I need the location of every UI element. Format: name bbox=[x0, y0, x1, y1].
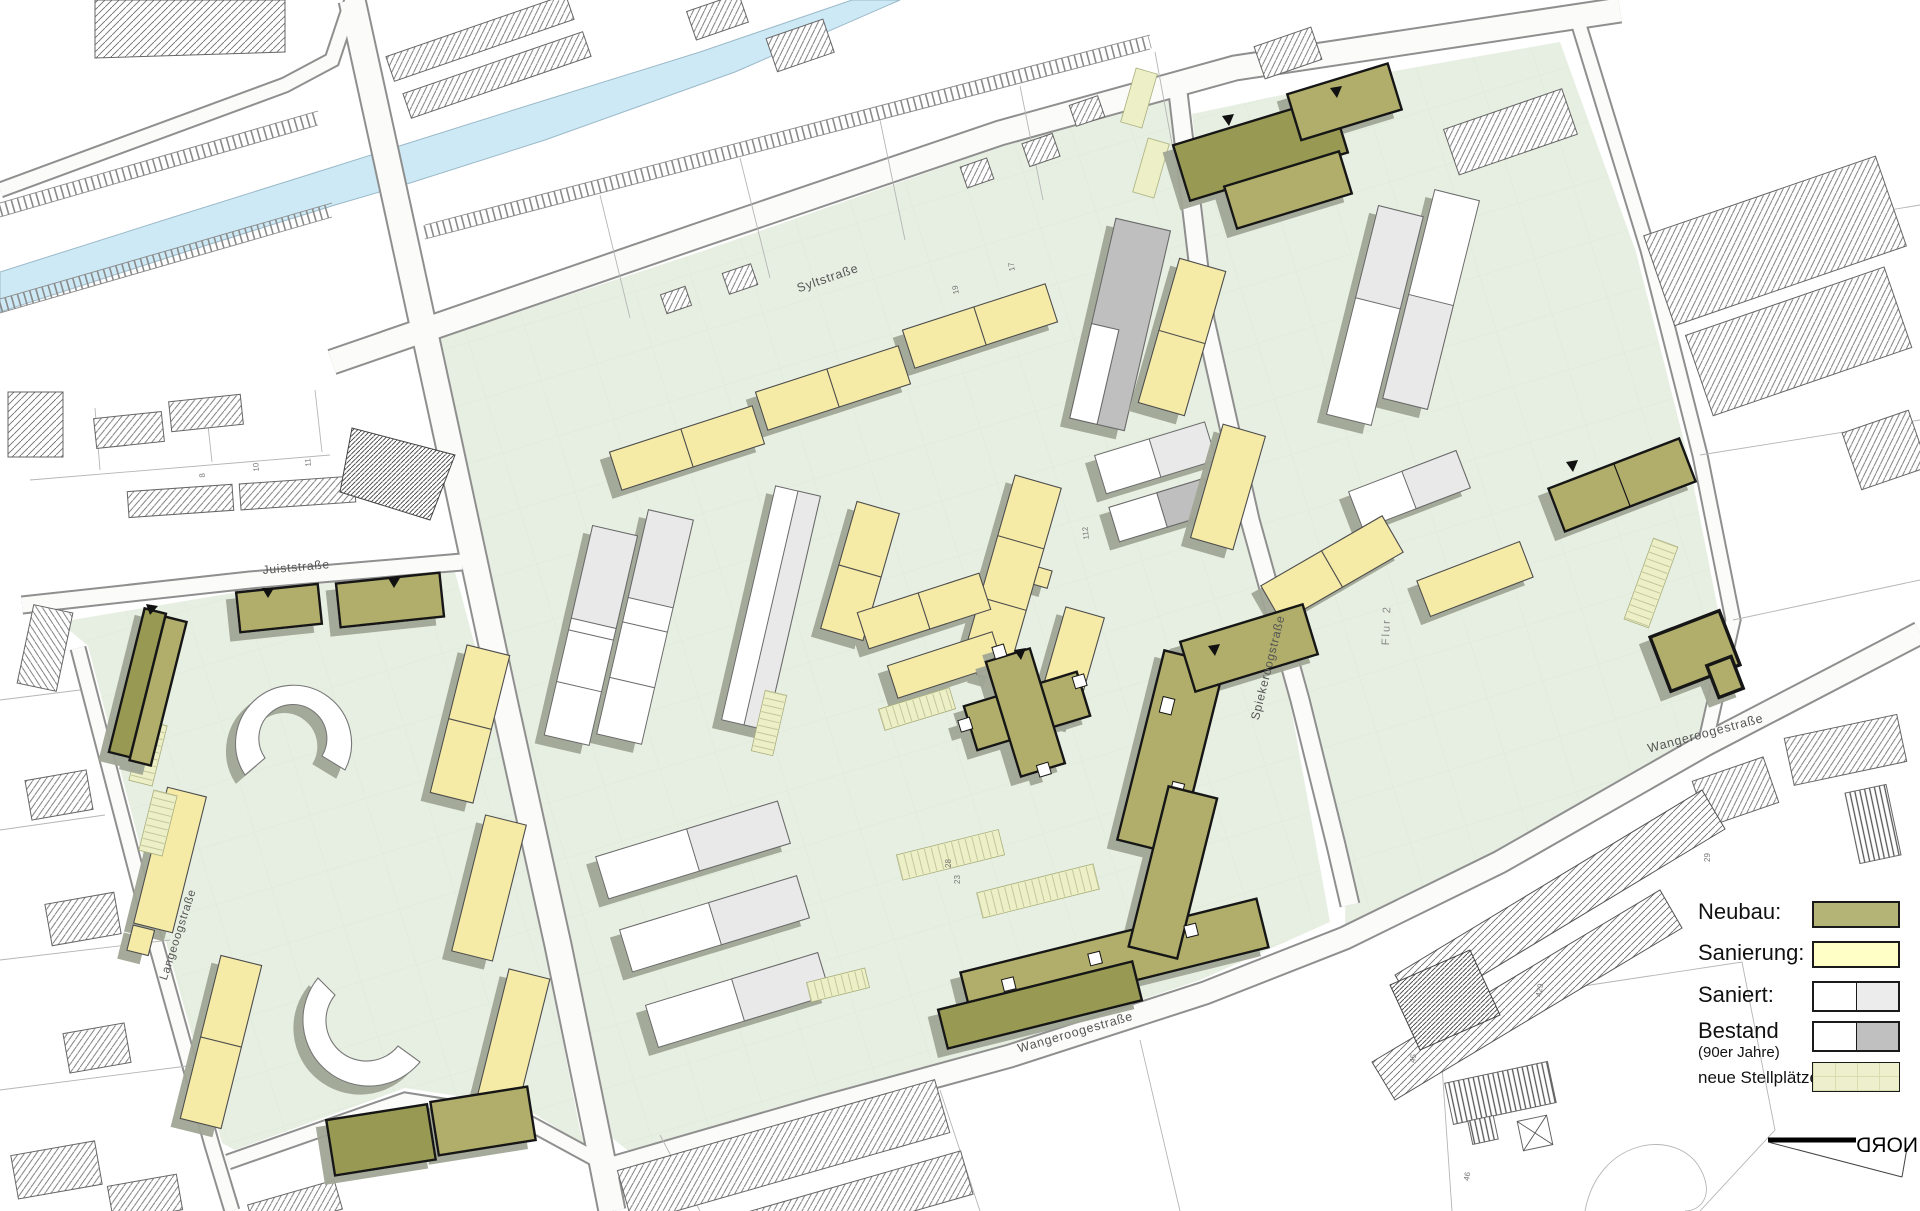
parcel-number: 45 bbox=[1408, 1053, 1418, 1063]
legend-swatch-bestand bbox=[1812, 1021, 1900, 1052]
parcel-number: 10 bbox=[251, 462, 261, 472]
legend-swatch-stellplaetze bbox=[1812, 1062, 1900, 1092]
legend-swatch-saniert-left bbox=[1814, 983, 1857, 1010]
legend-label-stellplaetze: neue Stellplätze: bbox=[1698, 1068, 1824, 1088]
site-plan-map: NORD bbox=[0, 0, 1920, 1211]
flur-label: Flur 2 bbox=[1380, 605, 1393, 646]
legend-label-neubau: Neubau: bbox=[1698, 899, 1781, 925]
parcel-number: 11 bbox=[303, 458, 313, 467]
parcel-number: 28 bbox=[944, 859, 953, 868]
neubau-left-bottom-b bbox=[430, 1087, 535, 1156]
legend-swatch-neubau bbox=[1812, 901, 1900, 928]
legend-label-saniert: Saniert: bbox=[1698, 982, 1774, 1008]
north-label: NORD bbox=[1856, 1134, 1918, 1157]
parcel-number: 23 bbox=[953, 875, 962, 884]
neubau-left-a bbox=[236, 584, 322, 632]
legend-swatch-bestand-right bbox=[1857, 1023, 1899, 1050]
legend-swatch-bestand-left bbox=[1814, 1023, 1857, 1050]
parcel-number: 17 bbox=[1006, 262, 1016, 272]
legend-swatch-saniert bbox=[1812, 981, 1900, 1012]
site-plan: NORD Syltstraße Juiststraße Langeoogstra… bbox=[0, 0, 1920, 1211]
legend-label-bestand: Bestand bbox=[1698, 1018, 1779, 1044]
legend-label-sanierung: Sanierung: bbox=[1698, 940, 1804, 966]
legend-sublabel-bestand: (90er Jahre) bbox=[1698, 1044, 1780, 1061]
north-arrow: NORD bbox=[1768, 1134, 1918, 1177]
parcel-number: 112 bbox=[1081, 526, 1091, 540]
legend-swatch-sanierung bbox=[1812, 941, 1900, 968]
parcel-number: 19 bbox=[950, 285, 960, 295]
parcel-number: 29 bbox=[1703, 853, 1712, 862]
parcel-number: 46 bbox=[1462, 1171, 1472, 1181]
legend-swatch-saniert-right bbox=[1857, 983, 1899, 1010]
parcel-number: 8 bbox=[198, 473, 207, 478]
